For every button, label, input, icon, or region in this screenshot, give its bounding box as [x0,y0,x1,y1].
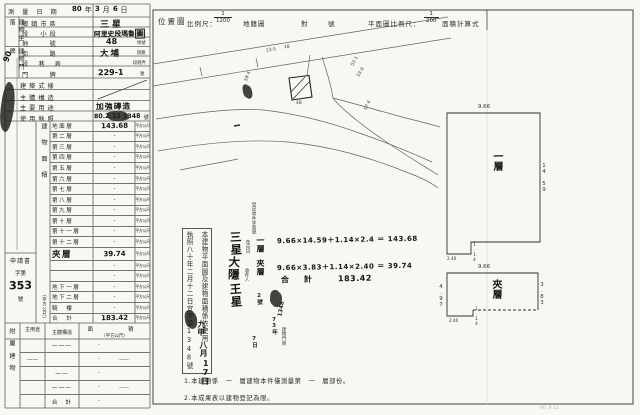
use-value: 加強磚造 [96,101,131,113]
floor-value: · [94,153,135,161]
use-label: 主要用途 [20,103,57,112]
area-calc-title: 面積計算式 [442,18,480,28]
annex-group-label: 附屬建物 [7,328,16,403]
date-part: 3 [95,5,100,15]
floor-value: · [94,175,135,183]
floor-label: 地下一層 [50,283,94,291]
floor-value: · [94,283,135,291]
floor-unit: 平方公尺 [135,197,150,203]
plan-floor1-dim-right: 14.59 [541,163,547,193]
floor-unit: 平方公尺 [135,186,150,192]
calc-floor1-label: 一層 [255,236,266,253]
floor-label: 第四層 [50,153,94,161]
annex-cell-area: · [79,356,119,363]
note-line-1: 1.本建物係 一 層建物本件僅測量第 一 層部份。 [184,376,350,385]
annex-row: —— · [20,367,150,381]
date-part: 日 [121,5,128,15]
floor-row: 第三層 · 平方公尺 [50,142,150,153]
map-lot-label: 48 [296,101,302,106]
floor-unit: 平方公尺 [135,133,150,139]
floor-row: 夾層 39.74 平方公尺 [50,248,150,261]
calc-mezzanine-label: 夾層 [255,259,266,276]
floor-row: 騎 樓 · 平方公尺 [50,303,150,314]
annex-cell-use: —— [20,357,45,363]
survey-date-value: 80年3月6日 [72,5,128,15]
floor-row: 第十層 · 平方公尺 [50,216,150,227]
lot-value: 48 [106,36,117,45]
subject-building-outline [289,76,312,101]
plan-floor1-outline [447,113,540,254]
floor-value: · [94,304,135,312]
handwritten-scrawl: 大隱 [226,256,243,282]
annex-header-area-title: 面 積 [79,325,150,333]
ink-blob [0,82,17,131]
date-part: 年 [85,5,92,15]
section-label: 段 小段 [22,29,59,38]
handwritten-scrawl: 建物門牌 [280,327,286,345]
location-map-title: 位置圖 [158,16,187,27]
survey-sheet: 測量日期 80年3月6日 建物坐落 建物門牌 鄉鎮市區 三星 段 小段 阿里史段… [0,0,640,415]
annex-cell-structure: —— [45,371,79,377]
floor-value: 39.74 [94,249,135,258]
handwritten-scrawl: 九甲 [196,320,208,337]
door-value: 229-1 [98,67,124,76]
floor-row: 第十一層 · 平方公尺 [50,227,150,238]
handwritten-scrawl: 王星 [227,282,245,308]
filing-box: 申請書 字第 353 號 [5,253,36,324]
map-lot-label: 57-6 [364,100,373,111]
map-lot-label: 53-1 [350,56,359,67]
lot-label: 地 號 [22,39,59,48]
cadastral-hao-label: 號 [328,18,336,28]
structure-label: 主體構造 [20,93,57,102]
plan-floor1-dim-top: 9.66 [478,104,490,110]
plan-mezzanine-dim-top: 9.66 [478,264,490,270]
cadastral-duei-label: 對 [301,18,309,28]
handwritten-scrawl: 登記收件字第號 [250,202,256,234]
floor-unit: 平方公尺 [135,284,150,290]
floor-label: 第二層 [50,132,94,140]
floor-unit: 平方公尺 [135,144,150,150]
footer-faint-mark: 90. 8.12 [540,406,559,411]
floor-value: · [94,293,135,301]
filing-title: 申請書 [5,256,36,265]
floors-group-unit: （平方公尺） [41,292,47,321]
floor-value: 143.68 [94,121,135,130]
ink-blob [242,84,253,98]
floor-row: 地下一層 · 平方公尺 [50,282,150,293]
lane-label: 段 巷 弄 [22,59,63,68]
floor-value: · [94,132,135,140]
handwritten-scrawl: 2號 [255,293,263,305]
plan-scale-label: 平面圖比例尺： [368,18,421,28]
floor-unit: 平方公尺 [135,273,150,279]
street-value: 大埔 [100,46,121,58]
floor-unit: 平方公尺 [135,294,150,300]
license-note-col2: 執照八十年二月十二日宜字第1348號 [181,231,196,373]
floor-label: 地面層 [50,122,94,130]
cadastral-map-label: 地籍圖 [243,18,266,28]
floor-value: · [94,262,135,270]
floor-row: 第七層 · 平方公尺 [50,184,150,195]
floor-unit: 平方公尺 [135,207,150,213]
floor-label: 合 計 [50,314,94,322]
plan-floor1-name: 一層 [489,151,504,171]
date-part: 月 [103,5,110,15]
main-box-border [153,10,633,404]
floor-value: 183.42 [94,314,135,323]
handwritten-scrawl: 年月日 [244,240,250,254]
filing-prefix: 字第 [5,269,36,277]
date-part: 6 [113,5,118,15]
floor-row: 地下二層 · 平方公尺 [50,292,150,303]
annex-header-area: 面 積 （平方公尺） [79,325,150,339]
plan-mezzanine-dim-left: 4.97 [438,284,444,308]
street-label: 街 路 [22,49,59,58]
survey-date-label: 測量日期 [8,7,65,16]
floor-unit: 平方公尺 [135,154,150,160]
annex-row: ——— · —— [20,381,150,395]
floor-row: 第八層 · 平方公尺 [50,195,150,206]
annex-row: 合 計 · [20,395,150,408]
floor-label: 第八層 [50,196,94,204]
location-scale-label: 比例尺： [187,18,217,28]
plan-mezzanine-dim-right: 3.83 [539,282,545,306]
annex-cell-area: · [79,384,119,391]
calc-mezzanine-formula: 9.66×3.83＋1.14×2.40 ＝ 39.74 [277,261,412,273]
floor-unit: 平方公尺 [135,239,150,245]
floor-row: 合 計 183.42 平方公尺 [50,314,150,324]
floor-value: · [94,164,135,172]
floor-label: 地下二層 [50,293,94,301]
floor-label: 第十一層 [50,227,94,235]
annex-cell-area-dash: —— [119,357,150,363]
lot-unit: 地號 [137,40,146,46]
door-unit: 號 [140,71,144,77]
annex-cell-area-dash: —— [119,385,150,391]
handwritten-scrawl: 八月 [198,341,210,357]
handwritten-scrawl: 73年 [270,317,278,335]
floor-row: 第六層 · 平方公尺 [50,174,150,185]
plan-mezzanine-dim-tab-height: 1.14 [474,306,479,326]
floor-value: · [94,272,135,280]
annex-cell-area: · [79,342,119,349]
floors-group: 建物面積 （平方公尺） [37,123,50,321]
floors-table: 地面層 143.68 平方公尺 第二層 · 平方公尺 第三層 · 平方公尺 第四… [50,121,150,323]
floor-row: 第四層 · 平方公尺 [50,153,150,164]
floor-unit: 平方公尺 [135,228,150,234]
floor-row: 第五層 · 平方公尺 [50,163,150,174]
map-lot-label: 58-4 [244,71,252,82]
floor-label: 第六層 [50,175,94,183]
door-label: 門 牌 [22,70,59,79]
handwritten-scrawl: 三星 [227,231,244,257]
floor-label: 第五層 [50,164,94,172]
map-lot-label: 53-9 [356,67,365,78]
floors-group-title: 建物面積 [39,123,48,253]
section-unit: 小段 [137,31,146,37]
floor-row: 地面層 143.68 平方公尺 [50,121,150,132]
plan-scale-denominator: 200 [424,17,439,24]
floor-unit: 平方公尺 [135,218,150,224]
site-map-sketch [153,17,451,188]
floor-unit: 平方公尺 [135,305,150,311]
calc-total-value: 183.42 [338,274,372,284]
floor-value: · [94,185,135,193]
floor-label: 第三層 [50,143,94,151]
floor-unit: 平方公尺 [135,315,150,321]
annex-rows: ——— · —— · —— —— · ——— · —— 合 計 [20,339,150,408]
floor-label: 夾層 [50,248,94,260]
annex-cell-area: · [79,398,119,405]
calc-floor1-formula: 9.66×14.59＋1.14×2.4 ＝ 143.68 [277,234,418,246]
handwritten-scrawl: 7日 [250,336,258,348]
annex-header-structure: 主體構造 [45,329,79,336]
location-scale-fraction: 1 1200 [214,11,232,24]
annex-row: ——— · [20,339,150,353]
plan-floor1-dim-tab-width: 2.40 [447,256,456,261]
plan-floor1-dim-tab-height: 1.14 [472,242,477,262]
township-label: 鄉鎮市區 [22,19,59,28]
floor-value: · [94,196,135,204]
style-label: 建築式樣 [20,81,57,90]
floor-unit: 平方公尺 [135,251,150,257]
floor-row: · 平方公尺 [50,261,150,272]
filing-number: 353 [5,279,36,293]
lane-unit: 段巷弄 [133,60,146,66]
floor-value: · [94,206,135,214]
floor-row: 第二層 · 平方公尺 [50,132,150,143]
blank-slash [98,80,147,99]
annex-header-use: 主用途 [20,326,45,333]
street-unit: 街路 [137,50,146,56]
floor-value: · [94,238,135,246]
floor-row: · 平方公尺 [50,271,150,282]
plan-scale-fraction: 1 200 [424,11,439,24]
floor-label: 第七層 [50,185,94,193]
license-unit: 號 [144,113,149,121]
floor-value: · [94,217,135,225]
handwritten-scrawl: 收件人 [243,268,249,282]
annex-cell-structure: 合 計 [45,397,79,406]
floor-unit: 平方公尺 [135,263,150,269]
floor-label: 第九層 [50,206,94,214]
annex-cell-area: · [79,370,119,377]
note-line-2: 2.本成果表以建物登記為限。 [184,393,274,402]
floor-label: 騎 樓 [50,304,94,312]
annex-cell-structure: ——— [45,343,79,349]
floor-row: 第十二層 · 平方公尺 [50,237,150,248]
annex-row: —— · —— [20,353,150,367]
map-lot-label: 13-5 [266,47,277,53]
location-scale-denominator: 1200 [214,17,232,24]
floor-label: 第十二層 [50,238,94,246]
filing-suffix: 號 [5,295,36,303]
floor-value: · [94,227,135,235]
plan-mezzanine-name: 夾層 [488,279,503,299]
map-lot-label: 18 [284,45,290,51]
floor-unit: 平方公尺 [135,176,150,182]
floor-row: 第九層 · 平方公尺 [50,206,150,217]
floor-unit: 平方公尺 [135,165,150,171]
date-part: 80 [72,5,82,15]
calc-total-label: 合 計 [281,274,318,286]
plan-mezzanine-dim-tab-width: 2.40 [449,318,458,323]
floor-value: · [94,143,135,151]
floor-label: 第十層 [50,217,94,225]
annex-cell-structure: ——— [45,385,79,391]
floor-unit: 平方公尺 [135,123,150,129]
